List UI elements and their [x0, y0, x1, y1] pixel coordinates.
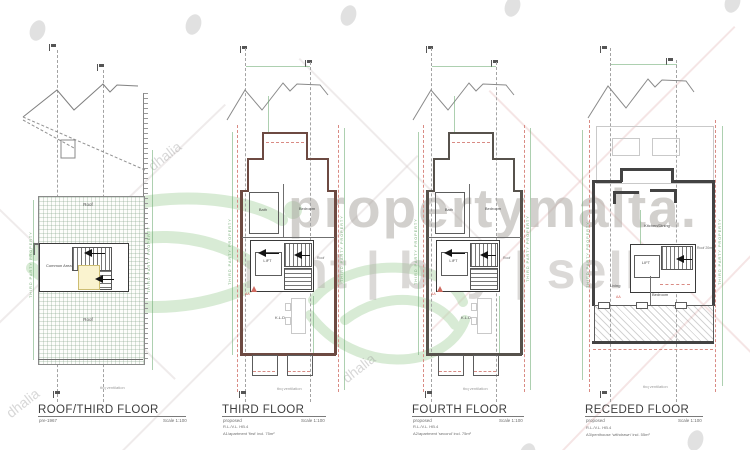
terrace-hatch — [594, 305, 714, 343]
dimension-line — [499, 296, 500, 353]
section-label: AA — [431, 293, 436, 297]
wall-thin — [650, 276, 651, 305]
plan-status: proposed — [586, 418, 605, 423]
roof-edge-line — [38, 359, 143, 360]
section-marker-icon — [53, 391, 61, 398]
dimension-line — [246, 66, 310, 67]
drawing-sheet: propertymalta. rent | buy | sell dhalia … — [0, 0, 750, 450]
roof-outline — [408, 78, 534, 130]
furniture-chair — [285, 317, 291, 325]
room-label-common-area: Common Area — [46, 264, 72, 268]
dimension-line — [432, 66, 496, 67]
wall — [247, 158, 264, 160]
dimension-line — [152, 150, 153, 370]
plan-scale: Scale 1:100 — [163, 418, 187, 423]
section-triangle-marker — [251, 283, 257, 292]
ventilation-note: tbq ventilation — [277, 387, 302, 391]
wall-thin — [242, 237, 335, 238]
plan-apartment-note: A3/penthouse 'withdrawn' incl. 55m² — [586, 432, 650, 437]
wall — [448, 132, 494, 134]
dimension-line — [313, 296, 314, 353]
wall — [674, 189, 677, 203]
plan-title: ROOF/THIRD FLOOR — [38, 404, 159, 416]
room-label-bath: Bath — [252, 208, 274, 212]
plan-title: RECEDED FLOOR — [585, 404, 689, 416]
dimension-line — [640, 210, 641, 244]
wall — [592, 341, 714, 344]
title-rule — [38, 416, 186, 417]
plan-reference: R.L./V.L. HB.4 — [586, 425, 611, 430]
plan-status: proposed — [223, 418, 242, 423]
boundary-label-left: THIRD PARTY PROPERTY — [586, 198, 590, 288]
balcony-dashed-line — [439, 371, 461, 372]
section-marker-icon — [426, 46, 434, 53]
plan-title: THIRD FLOOR — [222, 404, 304, 416]
stair-dashed-line — [660, 284, 690, 285]
title-rule — [412, 416, 524, 417]
dhalia-egg-logo — [685, 428, 706, 450]
boundary-label-right: THIRD PARTY PROPERTY — [147, 203, 151, 293]
shaft-label: Roof — [503, 257, 519, 261]
room-label-kitchen-dining: Kitchen/Dining — [637, 224, 677, 228]
balcony — [473, 355, 499, 376]
ventilation-note: tbq ventilation — [100, 386, 125, 390]
wall — [448, 132, 450, 160]
plan-apartment-note: A1/apartment 'first' incl. 75m² — [223, 431, 275, 436]
title-rule — [222, 416, 326, 417]
wall — [513, 158, 515, 192]
plan-title: FOURTH FLOOR — [412, 404, 507, 416]
boundary-line — [237, 125, 238, 392]
dhalia-watermark-text: dhalia — [145, 138, 184, 174]
wall — [520, 190, 523, 355]
roof-area-label: Roof 20m — [697, 247, 715, 251]
section-marker-icon — [425, 391, 433, 398]
plan-reference: R.L./V.L. HB.4 — [223, 424, 248, 429]
wall — [650, 189, 677, 192]
plan-scale: Scale 1:100 — [499, 418, 523, 423]
balcony — [438, 355, 464, 376]
rooflight — [612, 138, 640, 156]
room-label-roof: Roof — [78, 203, 98, 208]
roof-outline — [222, 78, 348, 130]
dimension-line — [418, 132, 419, 355]
room-label-bedroom: Bedroom — [478, 207, 508, 211]
wall — [426, 190, 429, 355]
section-label: AA — [616, 296, 621, 300]
ventilation-note: tbq ventilation — [643, 385, 668, 389]
dimension-line — [454, 96, 455, 132]
boundary-line — [338, 125, 339, 392]
dhalia-egg-logo — [338, 3, 359, 28]
wall — [262, 132, 308, 134]
dimension-line — [582, 130, 583, 380]
wall — [334, 190, 337, 355]
dhalia-egg-logo — [183, 12, 204, 37]
stair-treads — [470, 268, 498, 290]
shaft-label: Roof — [317, 257, 333, 261]
furniture-table — [291, 298, 306, 334]
section-label: AA — [245, 293, 250, 297]
boundary-dashed-line — [593, 349, 713, 350]
dhalia-watermark-text: dhalia — [3, 385, 42, 421]
rooflight — [652, 138, 680, 156]
room-label-bedroom: Bedroom — [292, 207, 322, 211]
boundary-line — [715, 120, 716, 392]
dimension-line — [268, 96, 269, 132]
plan-status: proposed — [413, 418, 432, 423]
wall — [247, 158, 249, 192]
room-label-bedroom: Bedroom — [652, 293, 668, 297]
section-marker-icon — [49, 44, 57, 51]
parapet-pier — [675, 302, 687, 309]
wall — [433, 158, 450, 160]
dhalia-egg-logo — [517, 441, 538, 450]
stair-arrow-tail — [451, 253, 465, 254]
wall-thin — [469, 184, 470, 237]
furniture-chair — [471, 303, 477, 311]
balcony-dashed-line — [474, 371, 496, 372]
wall — [306, 132, 308, 160]
plan-scale: Scale 1:100 — [678, 418, 702, 423]
dimension-line — [232, 132, 233, 355]
room-label-roof: Roof — [78, 318, 98, 323]
dhalia-egg-logo — [27, 18, 48, 43]
dimension-line — [611, 64, 677, 65]
dimension-line — [33, 200, 34, 360]
plan-reference: R.L./V.L. HB.4 — [413, 424, 438, 429]
wall — [240, 190, 243, 355]
wall — [592, 180, 595, 306]
section-marker-icon — [239, 391, 247, 398]
stair-arrow-tail — [301, 255, 310, 256]
furniture-table — [477, 298, 492, 334]
wall — [712, 180, 715, 306]
wall — [433, 158, 435, 192]
section-triangle-marker — [437, 283, 443, 292]
dhalia-egg-logo — [502, 0, 523, 19]
roof-outline — [582, 74, 718, 128]
balcony — [252, 355, 278, 376]
dimension-line — [344, 128, 345, 390]
furniture-chair — [285, 303, 291, 311]
balcony — [287, 355, 313, 376]
balcony-dashed-line — [288, 371, 310, 372]
stair-arrow-tail — [265, 253, 279, 254]
lift-label: LIFT — [634, 261, 658, 265]
stair-arrow-tail — [683, 259, 692, 260]
ventilation-note: tbq ventilation — [463, 387, 488, 391]
section-marker-icon — [600, 46, 608, 53]
parapet-pier — [598, 302, 610, 309]
wall-thin — [428, 237, 521, 238]
lift-label: LIFT — [255, 259, 280, 263]
bath-room — [249, 192, 279, 234]
stair-arrow-tail — [487, 255, 496, 256]
wall — [262, 132, 264, 160]
room-label-bath: Bath — [438, 208, 460, 212]
bath-room — [435, 192, 465, 234]
wall-thin — [283, 184, 284, 237]
plan-status: pre-1967 — [39, 418, 57, 423]
wall — [327, 158, 329, 192]
section-marker-icon — [240, 46, 248, 53]
furniture-chair — [471, 317, 477, 325]
stair-treads — [284, 268, 312, 290]
section-marker-icon — [600, 391, 608, 398]
title-rule — [585, 416, 703, 417]
boundary-line — [524, 125, 525, 392]
wall — [492, 158, 515, 160]
dimension-line — [722, 126, 723, 386]
plan-scale: Scale 1:100 — [301, 418, 325, 423]
wall — [671, 180, 714, 183]
lift-shaft — [634, 255, 660, 278]
dhalia-egg-logo — [722, 0, 743, 15]
lift-label: LIFT — [441, 259, 466, 263]
parapet-pier — [636, 302, 648, 309]
wall — [592, 180, 622, 183]
plan-apartment-note: A2/apartment 'second' incl. 75m² — [413, 431, 471, 436]
wall — [620, 168, 673, 171]
stair-arrow-tail — [102, 279, 114, 280]
balcony-dashed-line — [253, 371, 275, 372]
boundary-line — [423, 125, 424, 392]
dimension-line — [530, 128, 531, 390]
wall — [492, 132, 494, 160]
shaft-dashed-line — [452, 142, 490, 143]
wall — [613, 191, 616, 204]
wall — [306, 158, 329, 160]
wall — [613, 191, 639, 194]
shaft-dashed-line — [266, 142, 304, 143]
room-label-living: Living — [610, 284, 620, 288]
stair-arrow-tail — [91, 253, 105, 254]
roof-outline — [18, 80, 150, 202]
